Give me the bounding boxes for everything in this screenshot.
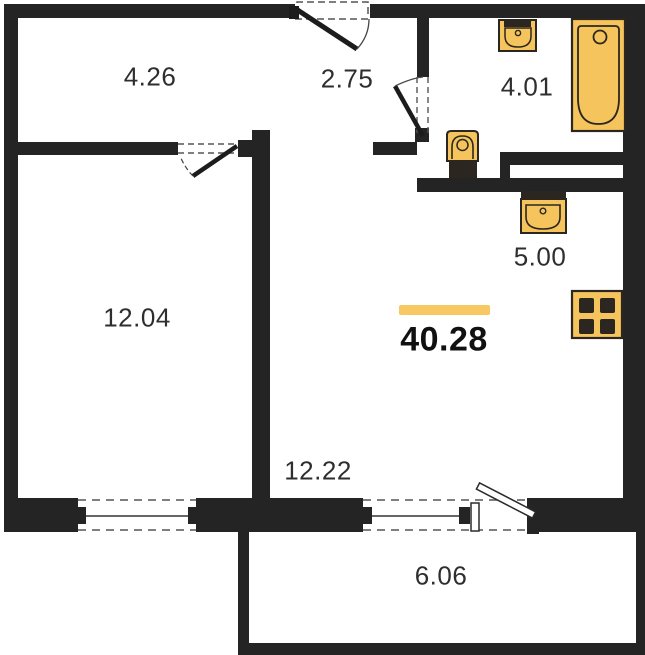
room-label-balcony: 6.06 (415, 561, 468, 592)
window-jamb (459, 507, 470, 524)
kitchen-sink-icon (521, 191, 566, 233)
entrance-door (289, 2, 370, 49)
stove-burner (579, 319, 594, 334)
stove-burner (579, 298, 594, 313)
bathtub-icon (572, 19, 625, 131)
balcony-door-frame (471, 503, 479, 531)
floor-plan: 4.26 2.75 4.01 12.04 5.00 12.22 6.06 40.… (0, 0, 645, 655)
room-label-bedroom: 12.04 (103, 303, 171, 334)
washbasin-mount (504, 20, 531, 27)
entrance-stoop-dashed (297, 2, 368, 14)
bedroom-window (75, 500, 199, 530)
entrance-door-leaf (296, 9, 357, 49)
washbasin-icon (499, 20, 536, 51)
stove-burner (600, 319, 615, 334)
bathtub-body (572, 19, 625, 131)
toilet-icon (447, 131, 478, 178)
room-label-entry: 2.75 (321, 64, 374, 95)
bedroom-door-leaf (193, 146, 237, 176)
window-jamb (361, 507, 372, 524)
room-label-kitchen: 5.00 (514, 242, 567, 273)
living-window (361, 500, 529, 530)
window-jamb (188, 507, 199, 524)
stove-icon (572, 291, 622, 338)
balcony-door (471, 483, 536, 531)
balcony-door-leaf (476, 483, 535, 518)
window-jamb (75, 507, 86, 524)
bathroom-door-leaf (395, 86, 423, 136)
room-label-hall: 4.26 (124, 62, 177, 93)
room-label-living: 12.22 (284, 456, 352, 487)
total-area-accent-bar (399, 305, 490, 315)
total-area-label: 40.28 (400, 321, 488, 360)
bathroom-door-swing-arc (395, 77, 423, 86)
toilet-cistern (449, 160, 477, 178)
entrance-door-swing-arc (357, 19, 369, 49)
bedroom-door-swing-arc (180, 156, 193, 176)
bathroom-door (395, 77, 428, 137)
room-label-bathroom: 4.01 (501, 72, 554, 103)
bedroom-door (178, 144, 238, 176)
stove-burner (600, 298, 615, 313)
